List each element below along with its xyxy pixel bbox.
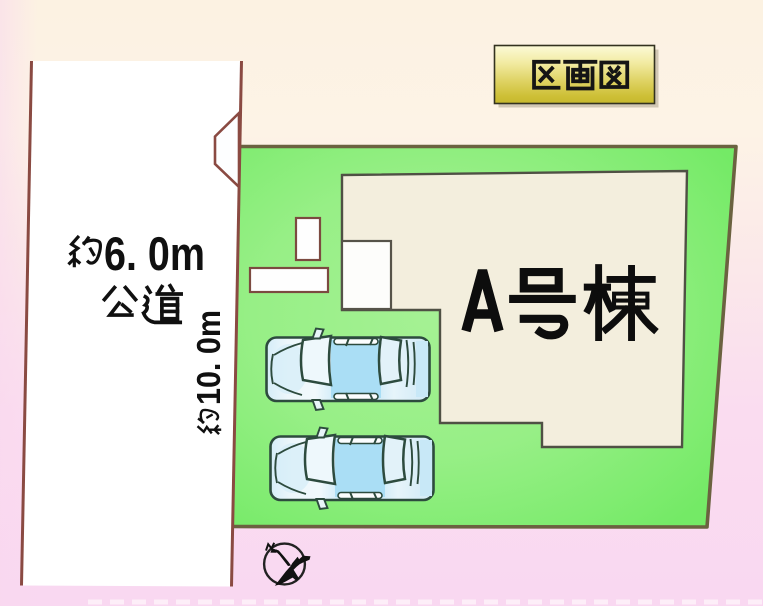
svg-text:10. 0m: 10. 0m — [190, 310, 227, 405]
svg-text:6. 0m: 6. 0m — [104, 227, 205, 280]
